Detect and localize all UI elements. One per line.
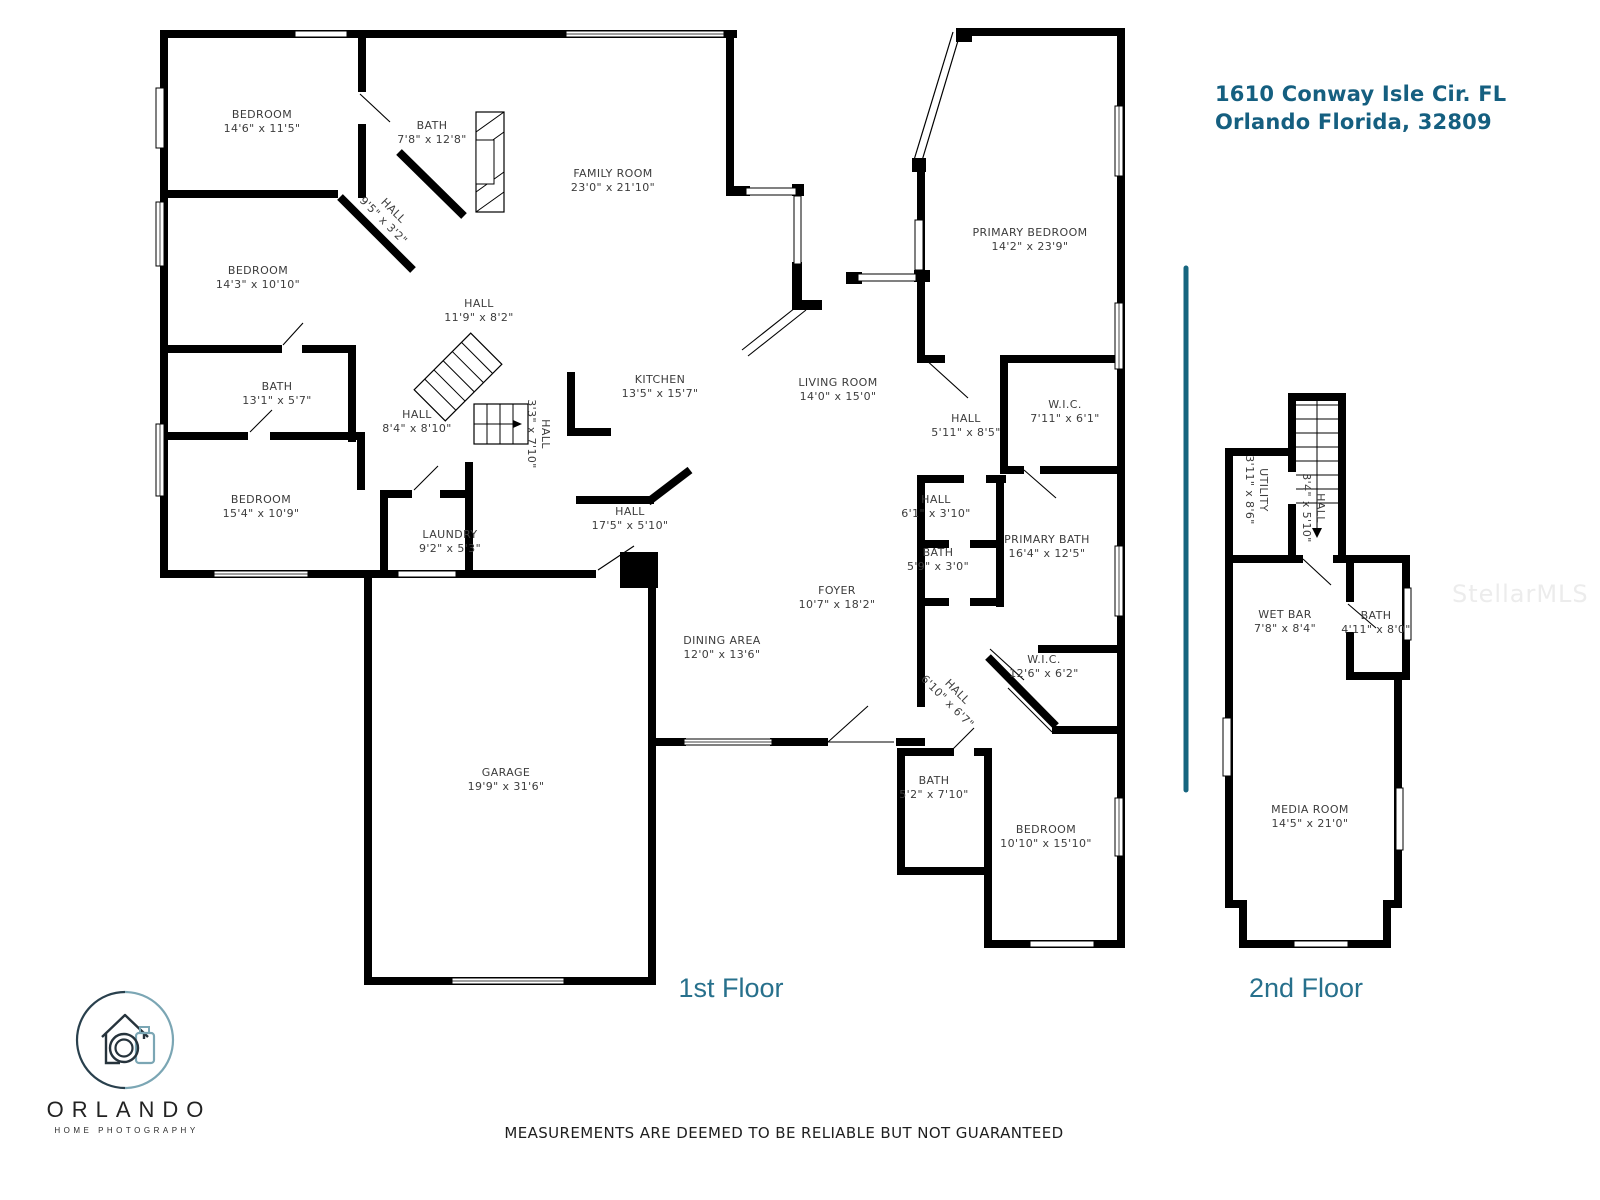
- room-label-living-room: LIVING ROOM 14'0" x 15'0": [798, 376, 877, 404]
- room-dims: 5'2" x 7'10": [899, 788, 968, 802]
- room-label-hall-small: HALL 6'1" x 3'10": [901, 493, 970, 521]
- room-name: BATH: [899, 774, 968, 788]
- room-label-laundry: LAUNDRY 9'2" x 5'3": [419, 528, 481, 556]
- address-line1: 1610 Conway Isle Cir. FL: [1215, 80, 1506, 108]
- room-label-wet-bar: WET BAR 7'8" x 8'4": [1254, 608, 1316, 636]
- room-name: PRIMARY BATH: [1004, 533, 1090, 547]
- room-name: PRIMARY BEDROOM: [972, 226, 1087, 240]
- mls-watermark: StellarMLS: [1452, 580, 1589, 608]
- room-label-bath4: BATH 5'2" x 7'10": [899, 774, 968, 802]
- room-dims: 13'5" x 15'7": [622, 387, 699, 401]
- room-label-utility: UTILITY 3'11" x 8'6": [1242, 455, 1270, 524]
- room-label-hall-2f: HALL 3'4" x 5'10": [1299, 473, 1327, 542]
- room-label-media-room: MEDIA ROOM 14'5" x 21'0": [1271, 803, 1349, 831]
- room-dims: 13'1" x 5'7": [242, 394, 311, 408]
- room-dims: 6'1" x 3'10": [901, 507, 970, 521]
- room-name: HALL: [1313, 473, 1327, 542]
- room-dims: 14'0" x 15'0": [798, 390, 877, 404]
- room-dims: 5'9" x 3'0": [907, 560, 969, 574]
- room-dims: 16'4" x 12'5": [1004, 547, 1090, 561]
- room-dims: 9'2" x 5'3": [419, 542, 481, 556]
- room-dims: 5'11" x 8'5": [931, 426, 1000, 440]
- room-name: GARAGE: [468, 766, 545, 780]
- room-label-bath3: BATH 5'9" x 3'0": [907, 546, 969, 574]
- room-name: BATH: [242, 380, 311, 394]
- room-name: BATH: [1341, 609, 1410, 623]
- room-name: LAUNDRY: [419, 528, 481, 542]
- room-dims: 14'6" x 11'5": [224, 122, 301, 136]
- room-label-primary-bath: PRIMARY BATH 16'4" x 12'5": [1004, 533, 1090, 561]
- room-label-hall-suite: HALL 5'11" x 8'5": [931, 412, 1000, 440]
- room-label-garage: GARAGE 19'9" x 31'6": [468, 766, 545, 794]
- room-dims: 15'4" x 10'9": [223, 507, 300, 521]
- room-label-primary-bedroom: PRIMARY BEDROOM 14'2" x 23'9": [972, 226, 1087, 254]
- room-label-wic-large: W.I.C. 12'6" x 6'2": [1009, 653, 1078, 681]
- room-name: BEDROOM: [216, 264, 300, 278]
- room-name: BEDROOM: [223, 493, 300, 507]
- room-label-bath1: BATH 7'8" x 12'8": [397, 119, 466, 147]
- room-label-bath2: BATH 13'1" x 5'7": [242, 380, 311, 408]
- room-dims: 11'9" x 8'2": [444, 311, 513, 325]
- room-dims: 14'5" x 21'0": [1271, 817, 1349, 831]
- room-dims: 3'11" x 8'6": [1242, 455, 1256, 524]
- room-label-wic-small: W.I.C. 7'11" x 6'1": [1030, 398, 1099, 426]
- room-dims: 17'5" x 5'10": [592, 519, 669, 533]
- room-label-foyer: FOYER 10'7" x 18'2": [799, 584, 876, 612]
- room-dims: 7'8" x 8'4": [1254, 622, 1316, 636]
- room-dims: 14'2" x 23'9": [972, 240, 1087, 254]
- room-name: BATH: [397, 119, 466, 133]
- room-dims: 14'3" x 10'10": [216, 278, 300, 292]
- room-label-bedroom3: BEDROOM 15'4" x 10'9": [223, 493, 300, 521]
- room-label-hall-main: HALL 11'9" x 8'2": [444, 297, 513, 325]
- room-name: FOYER: [799, 584, 876, 598]
- room-name: HALL: [444, 297, 513, 311]
- room-dims: 12'6" x 6'2": [1009, 667, 1078, 681]
- room-name: DINING AREA: [683, 634, 760, 648]
- room-name: UTILITY: [1256, 455, 1270, 524]
- fireplace: [476, 112, 504, 212]
- room-dims: 7'11" x 6'1": [1030, 412, 1099, 426]
- floor-plan-page: BEDROOM 14'6" x 11'5" BATH 7'8" x 12'8" …: [0, 0, 1600, 1200]
- room-label-hall-back: HALL 8'4" x 8'10": [382, 408, 451, 436]
- room-label-family-room: FAMILY ROOM 23'0" x 21'10": [571, 167, 655, 195]
- room-label-bath-2f: BATH 4'11" x 8'0": [1341, 609, 1410, 637]
- windows-second-floor: [1223, 588, 1411, 947]
- room-name: HALL: [901, 493, 970, 507]
- room-name: MEDIA ROOM: [1271, 803, 1349, 817]
- room-dims: 10'10" x 15'10": [1000, 837, 1092, 851]
- room-name: HALL: [382, 408, 451, 422]
- room-name: BEDROOM: [1000, 823, 1092, 837]
- room-label-hall-vert: HALL 3'3" x 7'10": [524, 399, 552, 468]
- room-name: BATH: [907, 546, 969, 560]
- logo-name: ORLANDO: [35, 1097, 215, 1123]
- room-name: W.I.C.: [1030, 398, 1099, 412]
- room-name: KITCHEN: [622, 373, 699, 387]
- room-label-bedroom1: BEDROOM 14'6" x 11'5": [224, 108, 301, 136]
- room-dims: 19'9" x 31'6": [468, 780, 545, 794]
- room-dims: 7'8" x 12'8": [397, 133, 466, 147]
- room-name: FAMILY ROOM: [571, 167, 655, 181]
- room-name: BEDROOM: [224, 108, 301, 122]
- room-dims: 4'11" x 8'0": [1341, 623, 1410, 637]
- room-dims: 12'0" x 13'6": [683, 648, 760, 662]
- room-label-hall-long: HALL 17'5" x 5'10": [592, 505, 669, 533]
- logo-tagline: HOME PHOTOGRAPHY: [35, 1126, 215, 1135]
- room-dims: 3'4" x 5'10": [1299, 473, 1313, 542]
- room-name: WET BAR: [1254, 608, 1316, 622]
- room-label-bedroom2: BEDROOM 14'3" x 10'10": [216, 264, 300, 292]
- photographer-logo: ORLANDO HOME PHOTOGRAPHY: [35, 985, 215, 1135]
- house-camera-icon: [70, 985, 180, 1095]
- room-dims: 23'0" x 21'10": [571, 181, 655, 195]
- first-floor-caption: 1st Floor: [678, 975, 783, 1002]
- room-name: W.I.C.: [1009, 653, 1078, 667]
- room-name: HALL: [931, 412, 1000, 426]
- address-title: 1610 Conway Isle Cir. FL Orlando Florida…: [1215, 80, 1506, 136]
- disclaimer-text: MEASUREMENTS ARE DEEMED TO BE RELIABLE B…: [504, 1124, 1063, 1142]
- room-label-kitchen: KITCHEN 13'5" x 15'7": [622, 373, 699, 401]
- room-dims: 3'3" x 7'10": [524, 399, 538, 468]
- room-dims: 8'4" x 8'10": [382, 422, 451, 436]
- bay-window-lines: [914, 32, 960, 164]
- room-dims: 10'7" x 18'2": [799, 598, 876, 612]
- room-label-dining-area: DINING AREA 12'0" x 13'6": [683, 634, 760, 662]
- room-name: LIVING ROOM: [798, 376, 877, 390]
- room-label-bedroom4: BEDROOM 10'10" x 15'10": [1000, 823, 1092, 851]
- second-floor-caption: 2nd Floor: [1249, 975, 1363, 1002]
- room-name: HALL: [538, 399, 552, 468]
- address-line2: Orlando Florida, 32809: [1215, 108, 1506, 136]
- room-name: HALL: [592, 505, 669, 519]
